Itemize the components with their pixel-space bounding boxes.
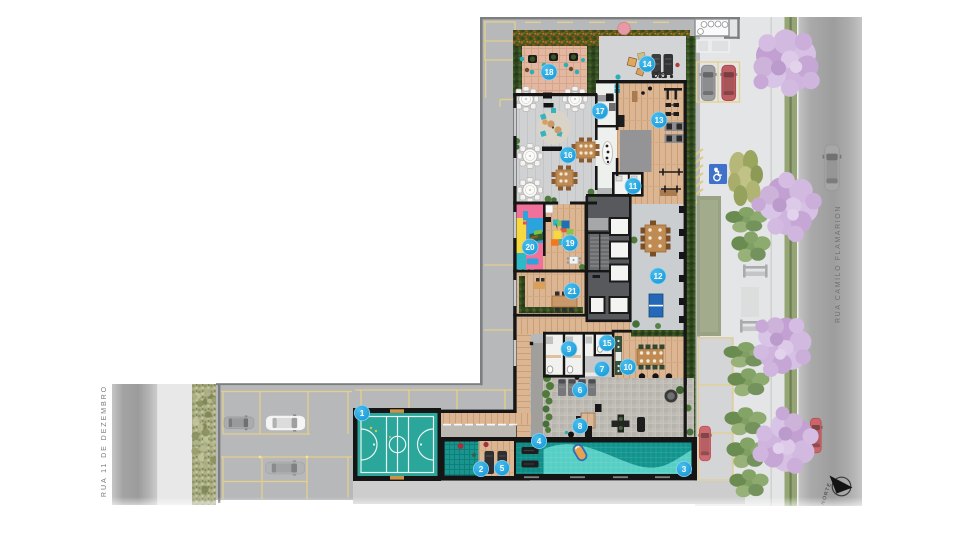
svg-text:20: 20	[525, 243, 535, 252]
svg-text:17: 17	[595, 107, 605, 116]
svg-text:12: 12	[653, 272, 663, 281]
svg-text:7: 7	[600, 365, 605, 374]
svg-text:10: 10	[623, 363, 633, 372]
svg-text:14: 14	[642, 60, 652, 69]
svg-text:8: 8	[578, 422, 583, 431]
svg-text:RUA 11 DE DEZEMBRO: RUA 11 DE DEZEMBRO	[100, 385, 108, 497]
svg-text:RUA CAMILO FLAMARION: RUA CAMILO FLAMARION	[835, 205, 842, 323]
svg-text:18: 18	[544, 68, 554, 77]
svg-text:4: 4	[537, 437, 542, 446]
svg-text:9: 9	[567, 345, 572, 354]
svg-text:3: 3	[682, 465, 687, 474]
svg-text:16: 16	[563, 151, 573, 160]
svg-text:11: 11	[629, 182, 638, 191]
svg-text:5: 5	[500, 464, 505, 473]
svg-text:6: 6	[578, 386, 583, 395]
svg-text:2: 2	[479, 465, 484, 474]
svg-text:15: 15	[602, 339, 612, 348]
svg-text:1: 1	[360, 409, 365, 418]
svg-text:13: 13	[654, 116, 664, 125]
svg-text:21: 21	[567, 287, 577, 296]
svg-text:19: 19	[565, 239, 575, 248]
